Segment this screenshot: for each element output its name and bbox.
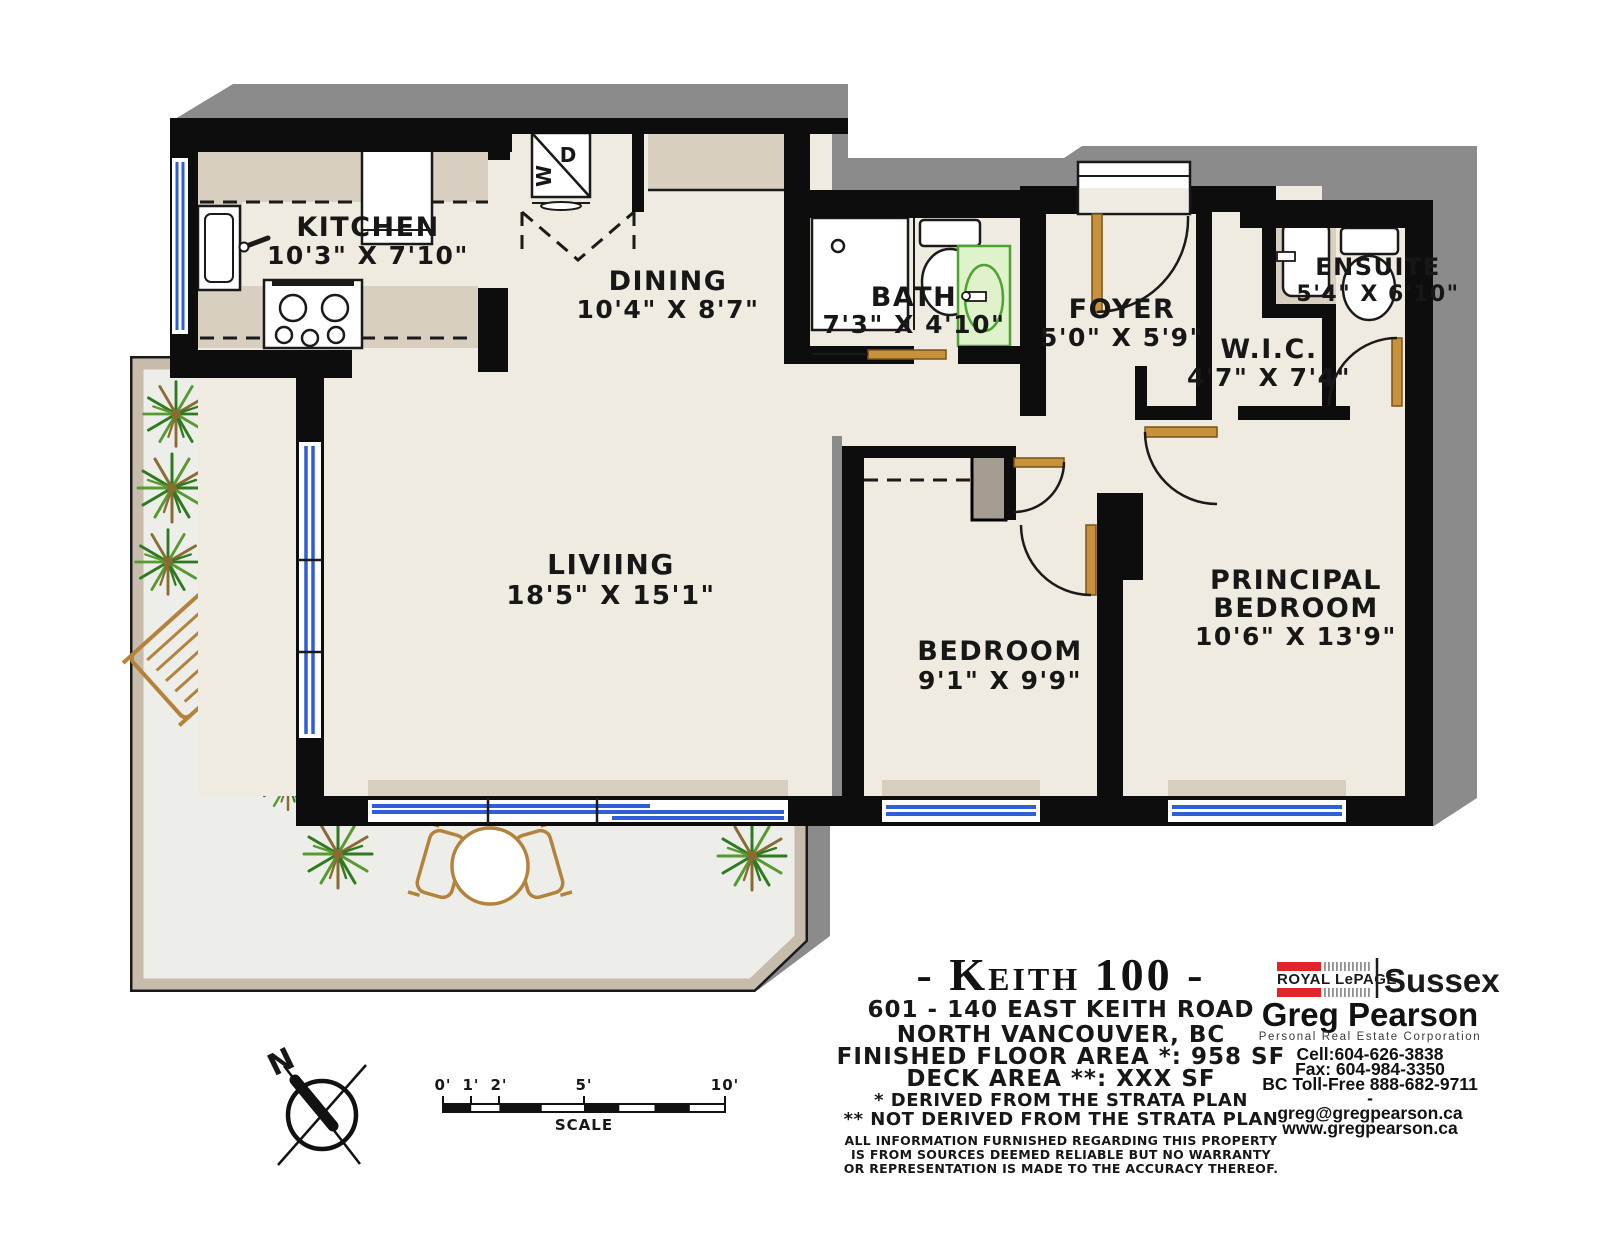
scale-tick-0: 0' [434, 1076, 451, 1094]
room-label-living: LIVIING [547, 548, 675, 581]
room-dims-ensuite: 5'4" X 6'10" [1296, 282, 1459, 307]
room-dims-dining: 10'4" X 8'7" [576, 295, 759, 324]
plan-note-1: * DERIVED FROM THE STRATA PLAN [874, 1090, 1248, 1111]
room-dims-foyer: 5'0" X 5'9" [1040, 323, 1204, 352]
scale-tick-1: 1' [462, 1076, 479, 1094]
room-label-kitchen: KITCHEN [296, 212, 439, 243]
bedroom-closet [972, 452, 1006, 520]
room-label-foyer: FOYER [1069, 294, 1176, 325]
plan-note-2: ** NOT DERIVED FROM THE STRATA PLAN [844, 1109, 1279, 1130]
room-dims-bath: 7'3" X 4'10" [822, 310, 1005, 339]
agent-name: Greg Pearson [1262, 996, 1478, 1033]
room-label-bath: BATH [871, 282, 957, 313]
room-label-ensuite: ENSUITE [1315, 253, 1440, 281]
room-label-bedroom: BEDROOM [917, 636, 1083, 667]
agent-subtitle: Personal Real Estate Corporation [1259, 1031, 1482, 1043]
washer-label: W [532, 165, 556, 187]
plan-disclaimer-2: IS FROM SOURCES DEEMED RELIABLE BUT NO W… [851, 1147, 1272, 1162]
floor-plan-page: D W [0, 0, 1600, 1240]
title-block: - Keith 100 - 601 - 140 EAST KEITH ROAD … [837, 949, 1286, 1176]
floor-plan-canvas: D W [0, 0, 1600, 1240]
principal-window [1168, 800, 1346, 822]
plan-disclaimer-1: ALL INFORMATION FURNISHED REGARDING THIS… [844, 1133, 1278, 1148]
scale-tick-2: 2' [490, 1076, 507, 1094]
living-patio-slider [298, 442, 322, 738]
plan-address: 601 - 140 EAST KEITH ROAD [868, 997, 1255, 1023]
room-label-wic: W.I.C. [1220, 334, 1317, 365]
plan-deck-area: DECK AREA **: XXX SF [906, 1066, 1215, 1092]
royal-lepage-wordmark: ROYAL LePAGE [1277, 971, 1397, 988]
scale-bar: 0' 1' 2' 5' 10' SCALE [434, 1076, 739, 1134]
stove [264, 280, 362, 348]
plan-title: - Keith 100 - [917, 949, 1206, 1000]
room-dims-bedroom: 9'1" X 9'9" [918, 666, 1082, 695]
bedroom-window [882, 800, 1040, 822]
room-dims-principal: 10'6" X 13'9" [1195, 622, 1397, 651]
scale-tick-10: 10' [711, 1076, 739, 1094]
brokerage-block: ROYAL LePAGE Sussex Greg Pearson Persona… [1259, 958, 1500, 1138]
scale-caption: SCALE [555, 1116, 613, 1134]
living-window [368, 798, 788, 824]
room-dims-kitchen: 10'3" X 7'10" [267, 241, 469, 270]
sussex-wordmark: Sussex [1384, 962, 1500, 999]
patio-table [452, 828, 528, 904]
agent-website: www.gregpearson.ca [1281, 1118, 1458, 1138]
room-dims-living: 18'5" X 15'1" [506, 581, 715, 611]
compass-icon: N [262, 1041, 366, 1165]
room-label-dining: DINING [609, 266, 728, 297]
room-label-principal-1: PRINCIPAL [1210, 565, 1382, 596]
kitchen-window [172, 158, 188, 334]
royal-lepage-logo: ROYAL LePAGE Sussex [1277, 958, 1500, 999]
dryer-label: D [560, 143, 577, 167]
plan-disclaimer-3: OR REPRESENTATION IS MADE TO THE ACCURAC… [844, 1161, 1279, 1176]
room-label-principal-2: BEDROOM [1213, 593, 1379, 624]
scale-tick-5: 5' [575, 1076, 592, 1094]
room-dims-wic: 4'7" X 7'4" [1187, 363, 1351, 392]
